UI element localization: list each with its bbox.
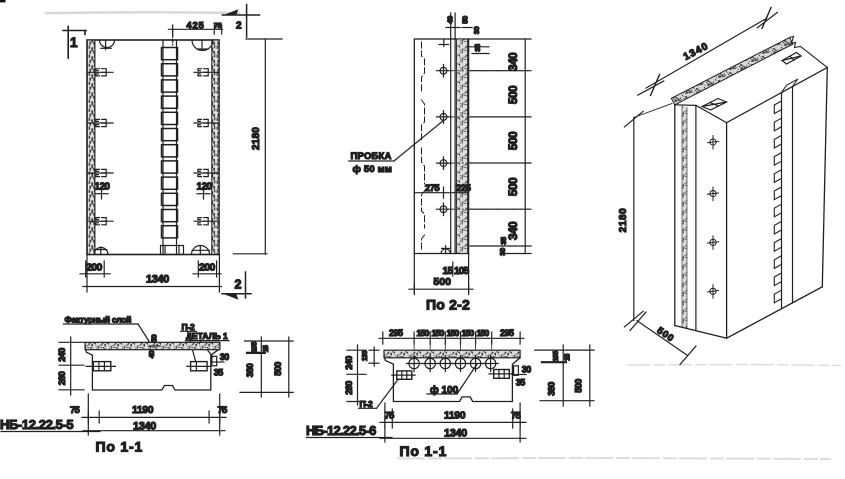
svg-text:120: 120 — [95, 182, 111, 193]
svg-text:15: 15 — [564, 354, 571, 361]
svg-text:По 1-1: По 1-1 — [400, 443, 448, 459]
svg-text:260: 260 — [57, 371, 67, 385]
svg-text:150: 150 — [477, 328, 490, 338]
svg-text:35: 35 — [499, 237, 508, 245]
svg-text:П-2: П-2 — [360, 399, 374, 409]
svg-text:500: 500 — [506, 177, 520, 196]
svg-text:105: 105 — [454, 266, 470, 277]
svg-text:150: 150 — [417, 328, 430, 338]
svg-text:1190: 1190 — [132, 404, 154, 416]
svg-text:По 2-2: По 2-2 — [426, 297, 470, 313]
svg-text:75: 75 — [218, 405, 228, 416]
svg-text:500: 500 — [506, 85, 520, 104]
svg-text:500: 500 — [574, 379, 584, 393]
svg-text:500: 500 — [273, 362, 283, 376]
svg-text:260: 260 — [344, 381, 354, 395]
svg-text:30: 30 — [498, 248, 507, 256]
svg-text:500: 500 — [655, 325, 676, 344]
svg-text:2180: 2180 — [618, 208, 629, 233]
svg-text:40: 40 — [446, 16, 455, 24]
svg-text:150: 150 — [462, 328, 475, 338]
svg-text:120: 120 — [197, 182, 213, 193]
svg-text:15: 15 — [263, 345, 270, 352]
svg-text:105: 105 — [251, 342, 258, 353]
svg-text:295: 295 — [389, 328, 403, 338]
svg-text:75: 75 — [385, 411, 395, 422]
svg-text:По 1-1: По 1-1 — [96, 439, 144, 455]
svg-text:ф 50 мм: ф 50 мм — [353, 164, 393, 175]
svg-text:340: 340 — [506, 221, 520, 240]
svg-text:40: 40 — [147, 351, 156, 359]
svg-text:2180: 2180 — [251, 127, 262, 150]
svg-text:Фактурный слой: Фактурный слой — [65, 314, 132, 324]
svg-text:50: 50 — [461, 16, 470, 24]
svg-text:75: 75 — [70, 405, 80, 416]
svg-text:2: 2 — [235, 278, 242, 292]
svg-text:50: 50 — [150, 335, 159, 343]
svg-text:1340: 1340 — [146, 274, 169, 286]
svg-text:ПРОБКА: ПРОБКА — [351, 151, 392, 162]
svg-text:130: 130 — [362, 350, 369, 361]
svg-text:340: 340 — [506, 52, 520, 71]
svg-text:НБ-12.22.5-6: НБ-12.22.5-6 — [306, 423, 376, 438]
svg-text:105: 105 — [553, 351, 560, 362]
svg-text:500: 500 — [506, 131, 520, 150]
svg-text:30: 30 — [220, 352, 229, 362]
svg-text:1190: 1190 — [444, 410, 466, 422]
svg-text:240: 240 — [344, 356, 354, 370]
svg-text:380: 380 — [245, 363, 255, 377]
svg-text:35: 35 — [214, 368, 223, 378]
svg-text:425: 425 — [186, 21, 204, 32]
svg-text:1: 1 — [70, 35, 78, 50]
svg-text:30: 30 — [522, 365, 531, 375]
svg-text:200: 200 — [199, 262, 215, 274]
svg-text:2: 2 — [236, 21, 242, 32]
svg-text:150: 150 — [447, 328, 460, 338]
svg-text:ДЕТАЛЬ 1: ДЕТАЛЬ 1 — [186, 331, 228, 341]
svg-text:30: 30 — [472, 27, 481, 35]
svg-text:150: 150 — [432, 328, 445, 338]
svg-text:240: 240 — [57, 348, 67, 362]
svg-text:295: 295 — [500, 328, 514, 338]
svg-text:35: 35 — [473, 44, 482, 52]
svg-text:500: 500 — [433, 276, 451, 288]
svg-text:35: 35 — [516, 378, 525, 388]
svg-text:НБ-12.22.5-5: НБ-12.22.5-5 — [0, 417, 73, 432]
svg-text:380: 380 — [547, 382, 557, 396]
svg-text:200: 200 — [86, 262, 102, 274]
